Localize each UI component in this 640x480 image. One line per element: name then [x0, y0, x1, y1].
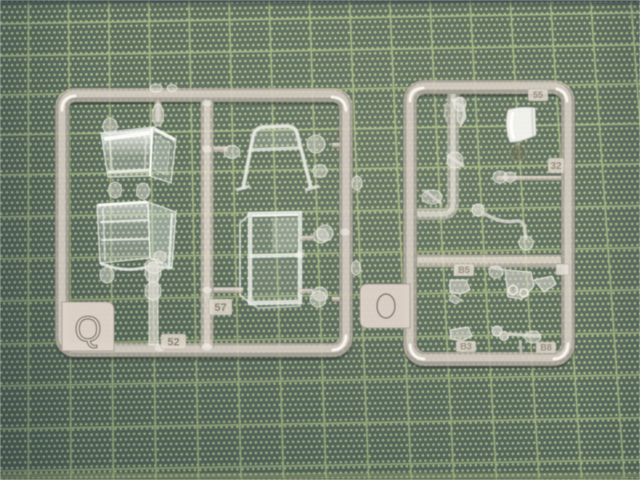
svg-text:52: 52	[167, 336, 179, 348]
svg-text:B8: B8	[540, 343, 552, 353]
svg-text:B5: B5	[458, 265, 470, 275]
svg-text:Q: Q	[74, 310, 101, 349]
svg-text:B3: B3	[460, 342, 472, 352]
svg-text:55: 55	[533, 90, 543, 100]
svg-text:57: 57	[214, 302, 226, 314]
svg-text:32: 32	[550, 161, 562, 172]
